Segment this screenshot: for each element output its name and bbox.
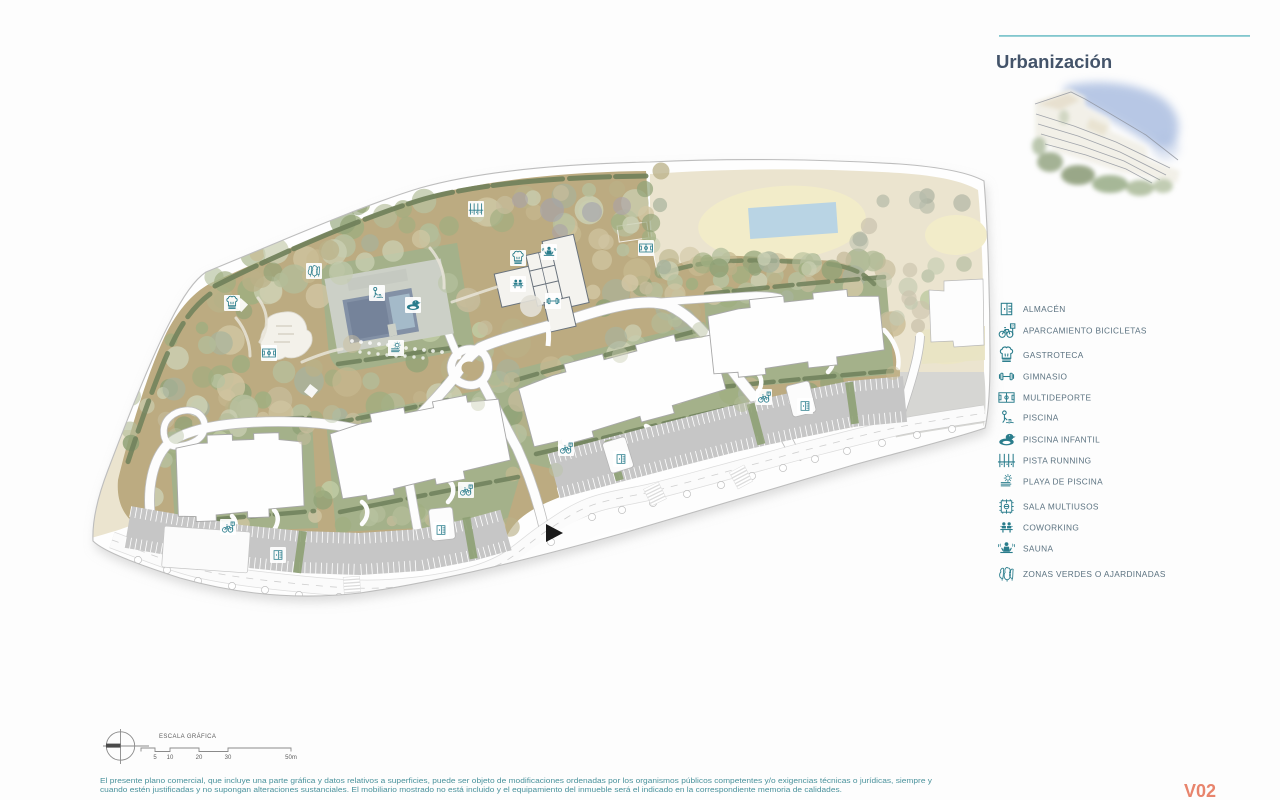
svg-text:SAUNA: SAUNA [1023,544,1053,554]
svg-text:El presente plano comercial, q: El presente plano comercial, que incluye… [100,778,933,785]
svg-text:P: P [768,392,770,396]
svg-text:P: P [232,522,234,526]
svg-text:GASTROTECA: GASTROTECA [1023,350,1084,360]
svg-text:50m: 50m [285,755,297,761]
svg-text:P: P [470,485,472,489]
svg-text:PISTA RUNNING: PISTA RUNNING [1023,456,1091,466]
svg-text:P: P [1011,324,1014,328]
svg-text:ALMACÉN: ALMACÉN [1023,304,1066,314]
svg-text:SALA MULTIUSOS: SALA MULTIUSOS [1023,502,1099,512]
svg-text:V02: V02 [1184,781,1216,800]
svg-text:GIMNASIO: GIMNASIO [1023,372,1067,382]
svg-text:30: 30 [225,755,232,761]
svg-text:COWORKING: COWORKING [1023,523,1079,533]
svg-text:10: 10 [167,755,174,761]
svg-text:ZONAS VERDES O AJARDINADAS: ZONAS VERDES O AJARDINADAS [1023,569,1166,579]
svg-text:PLAYA DE PISCINA: PLAYA DE PISCINA [1023,477,1103,487]
svg-text:PISCINA: PISCINA [1023,413,1059,423]
svg-text:MULTIDEPORTE: MULTIDEPORTE [1023,393,1092,403]
svg-text:Urbanización: Urbanización [996,51,1112,72]
svg-text:20: 20 [196,755,203,761]
svg-text:ESCALA GRÁFICA: ESCALA GRÁFICA [159,733,216,740]
svg-text:cuando estén justificadas y no: cuando estén justificadas y no supongan … [100,787,842,794]
svg-text:PISCINA INFANTIL: PISCINA INFANTIL [1023,435,1100,445]
svg-text:APARCAMIENTO BICICLETAS: APARCAMIENTO BICICLETAS [1023,326,1147,336]
svg-text:P: P [570,443,572,447]
